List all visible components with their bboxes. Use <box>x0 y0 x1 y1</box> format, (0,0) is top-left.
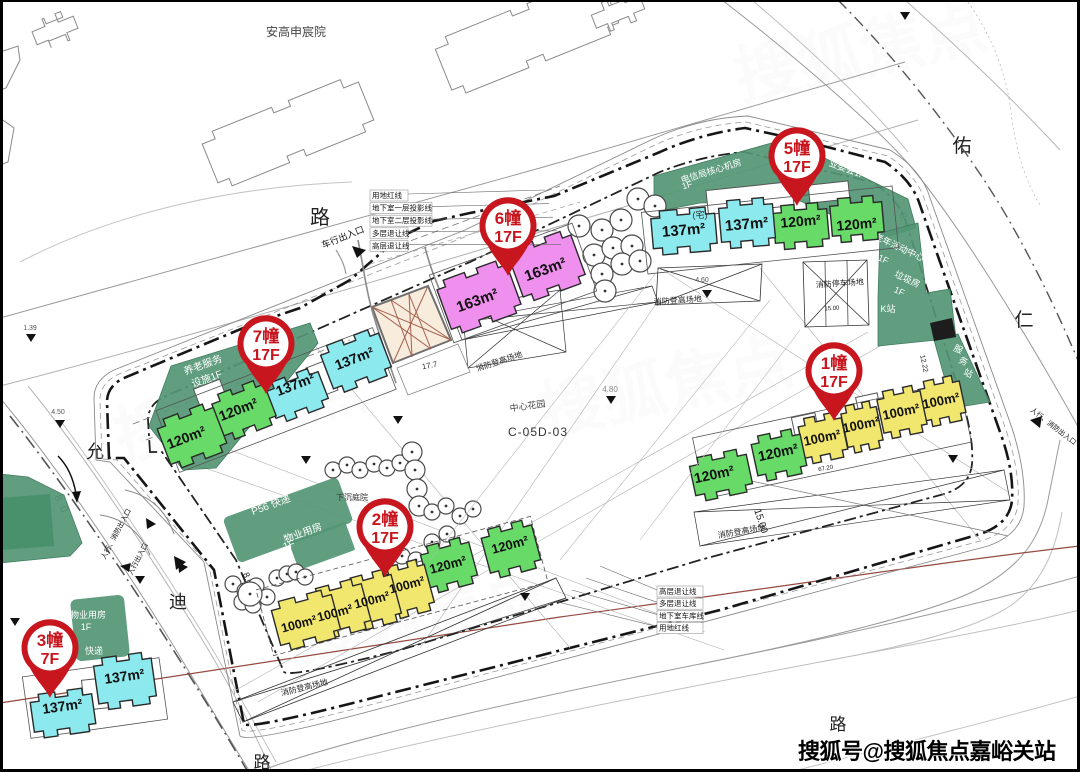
svg-text:佑: 佑 <box>952 135 971 157</box>
svg-text:地下室车库线: 地下室车库线 <box>659 610 704 620</box>
svg-text:地下室一层投影线: 地下室一层投影线 <box>372 203 432 213</box>
svg-text:多层退让线: 多层退让线 <box>659 598 697 608</box>
svg-text:路: 路 <box>310 206 330 229</box>
svg-text:多层退让线: 多层退让线 <box>372 228 410 238</box>
svg-text:5幢: 5幢 <box>784 138 810 158</box>
svg-text:用地红线: 用地红线 <box>659 623 689 633</box>
svg-text:17F: 17F <box>820 374 848 391</box>
svg-text:(宅): (宅) <box>693 209 708 220</box>
svg-text:高层退让线: 高层退让线 <box>659 586 697 596</box>
svg-text:6幢: 6幢 <box>495 208 521 228</box>
svg-text:路: 路 <box>830 715 847 734</box>
svg-text:3幢: 3幢 <box>37 630 63 650</box>
svg-text:1幢: 1幢 <box>821 353 847 373</box>
svg-text:17F: 17F <box>783 159 811 176</box>
svg-text:用地红线: 用地红线 <box>372 190 402 200</box>
svg-text:7F: 7F <box>41 651 60 668</box>
svg-text:高层退让线: 高层退让线 <box>372 240 410 250</box>
svg-text:K站: K站 <box>880 303 895 314</box>
svg-text:1F: 1F <box>81 622 92 632</box>
svg-text:17F: 17F <box>252 347 280 364</box>
svg-text:4.80: 4.80 <box>602 385 618 394</box>
svg-text:快递: 快递 <box>85 645 103 656</box>
svg-text:搜狐号@搜狐焦点嘉峪关站: 搜狐号@搜狐焦点嘉峪关站 <box>798 739 1056 764</box>
svg-text:地下室二层投影线: 地下室二层投影线 <box>372 215 432 225</box>
svg-text:4.50: 4.50 <box>51 409 65 416</box>
svg-text:17F: 17F <box>371 530 399 547</box>
svg-text:2幢: 2幢 <box>372 509 398 529</box>
svg-text:下沉庭院: 下沉庭院 <box>336 492 368 502</box>
svg-text:17F: 17F <box>494 229 522 246</box>
svg-text:4.60: 4.60 <box>695 277 709 284</box>
svg-text:安高申宸院: 安高申宸院 <box>266 24 326 39</box>
svg-text:仁: 仁 <box>1014 309 1033 331</box>
svg-text:C-05D-03: C-05D-03 <box>508 425 568 439</box>
svg-text:7幢: 7幢 <box>253 326 279 346</box>
svg-text:物业用房: 物业用房 <box>70 609 106 620</box>
svg-text:15.00: 15.00 <box>824 305 840 312</box>
svg-text:1.39: 1.39 <box>23 325 37 332</box>
svg-text:迪: 迪 <box>169 592 187 612</box>
